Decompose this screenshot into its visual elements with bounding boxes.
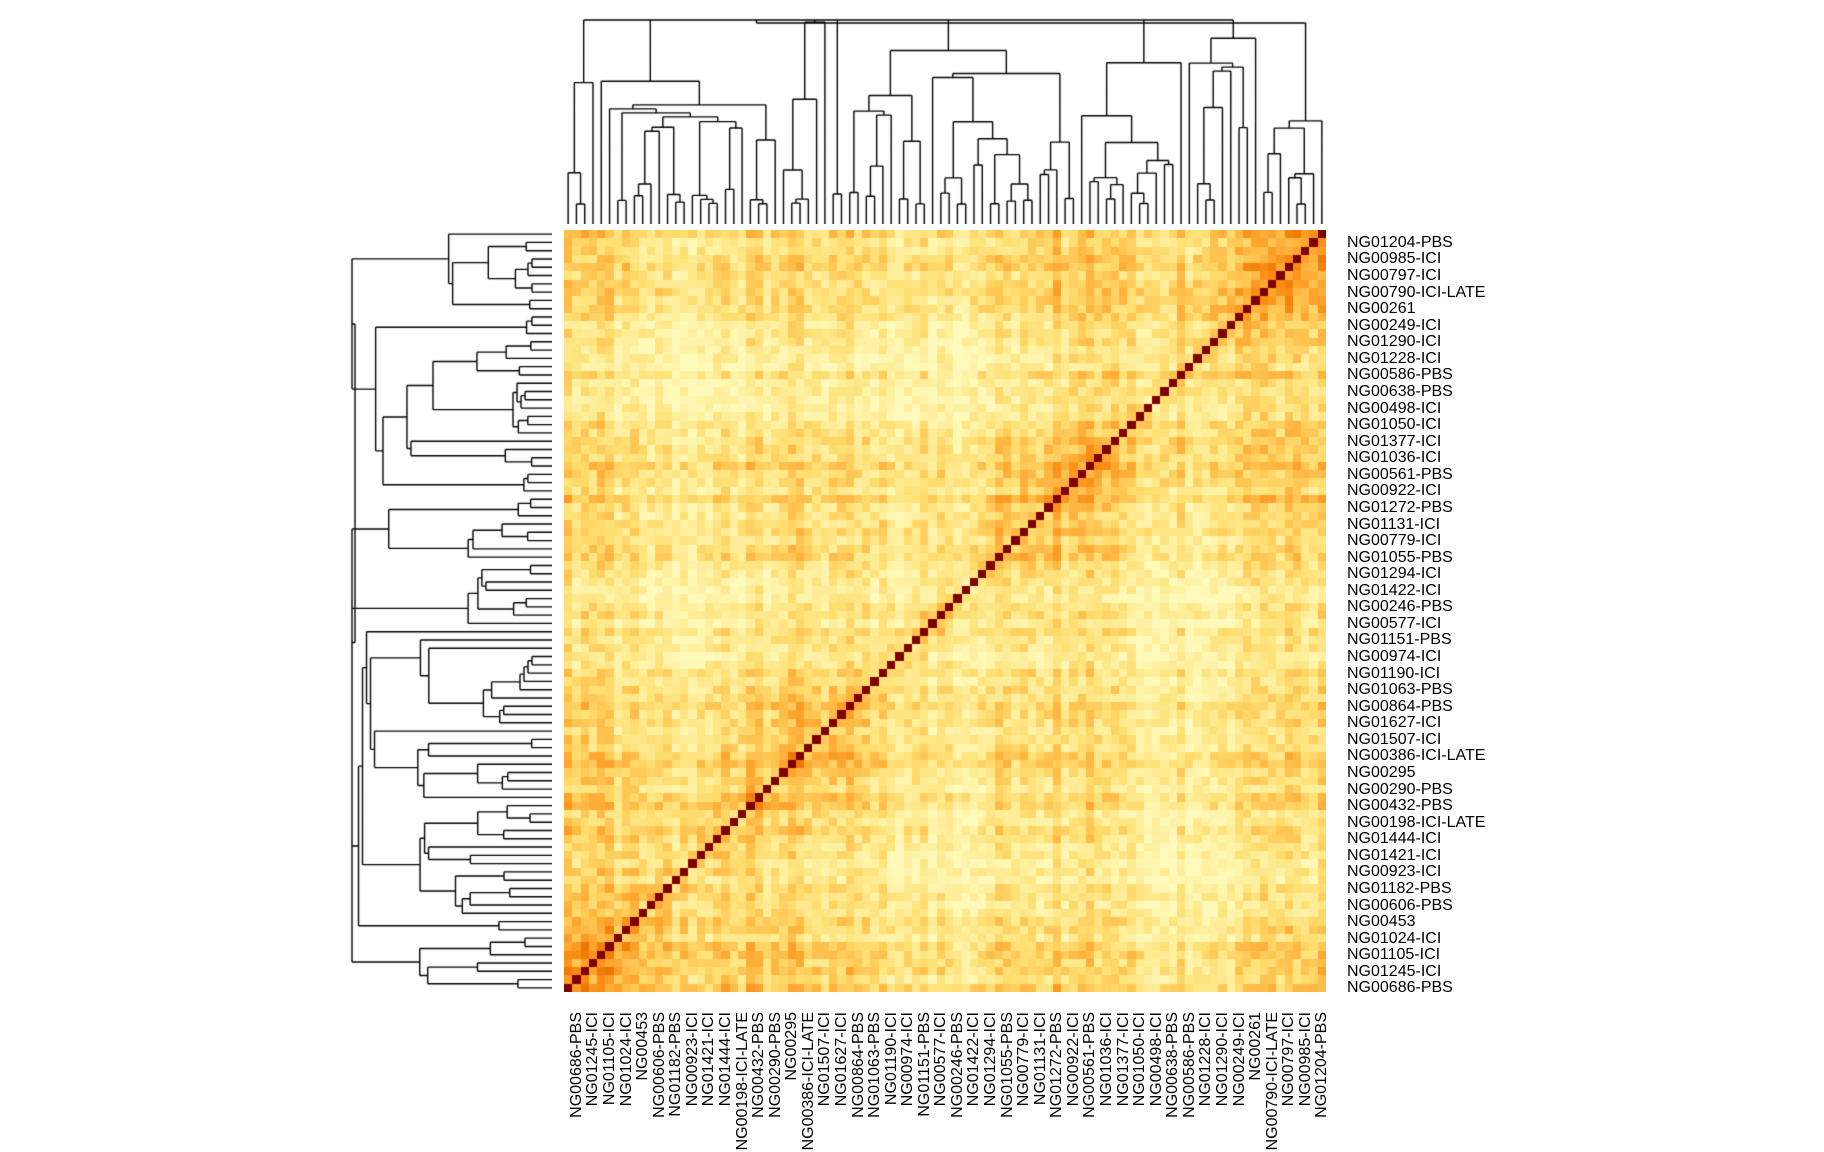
row-label: NG00577-ICI bbox=[1347, 615, 1441, 632]
row-label: NG01290-ICI bbox=[1347, 333, 1441, 350]
column-label: NG01063-PBS bbox=[866, 1012, 883, 1118]
row-label: NG01421-ICI bbox=[1347, 847, 1441, 864]
column-label: NG00246-PBS bbox=[949, 1012, 966, 1118]
row-label: NG00432-PBS bbox=[1347, 797, 1453, 814]
column-label: NG00985-ICI bbox=[1297, 1012, 1314, 1106]
column-label: NG00198-ICI-LATE bbox=[734, 1012, 751, 1150]
column-label: NG00561-PBS bbox=[1081, 1012, 1098, 1118]
column-label: NG01444-ICI bbox=[717, 1012, 734, 1106]
row-label: NG00249-ICI bbox=[1347, 317, 1441, 334]
row-label: NG00386-ICI-LATE bbox=[1347, 747, 1485, 764]
row-label: NG01204-PBS bbox=[1347, 234, 1453, 251]
column-label: NG01421-ICI bbox=[700, 1012, 717, 1106]
row-label: NG01131-ICI bbox=[1347, 516, 1440, 533]
row-label: NG00561-PBS bbox=[1347, 466, 1453, 483]
row-label: NG01444-ICI bbox=[1347, 830, 1441, 847]
row-label: NG00790-ICI-LATE bbox=[1347, 284, 1485, 301]
row-label: NG01245-ICI bbox=[1347, 963, 1441, 980]
column-label: NG01105-ICI bbox=[601, 1012, 618, 1105]
row-label: NG01050-ICI bbox=[1347, 416, 1441, 433]
column-label: NG01182-PBS bbox=[667, 1012, 684, 1117]
column-label: NG01190-ICI bbox=[883, 1012, 900, 1105]
row-label: NG01190-ICI bbox=[1347, 665, 1440, 682]
row-label: NG01063-PBS bbox=[1347, 681, 1453, 698]
row-label: NG01105-ICI bbox=[1347, 946, 1440, 963]
heatmap-matrix bbox=[564, 230, 1326, 992]
row-label: NG00922-ICI bbox=[1347, 482, 1441, 499]
column-label: NG01055-PBS bbox=[999, 1012, 1016, 1118]
column-label: NG00386-ICI-LATE bbox=[800, 1012, 817, 1150]
column-label: NG00779-ICI bbox=[1015, 1012, 1032, 1106]
column-label: NG01036-ICI bbox=[1098, 1012, 1115, 1106]
row-label: NG01228-ICI bbox=[1347, 350, 1441, 367]
column-label: NG00453 bbox=[634, 1012, 651, 1081]
column-label: NG00432-PBS bbox=[750, 1012, 767, 1118]
row-label: NG00864-PBS bbox=[1347, 698, 1453, 715]
row-label: NG00985-ICI bbox=[1347, 250, 1441, 267]
column-label: NG00864-PBS bbox=[850, 1012, 867, 1118]
column-label: NG00577-ICI bbox=[932, 1012, 949, 1106]
row-label: NG00586-PBS bbox=[1347, 366, 1453, 383]
column-label: NG01245-ICI bbox=[584, 1012, 601, 1106]
column-label: NG00295 bbox=[783, 1012, 800, 1081]
row-label: NG00198-ICI-LATE bbox=[1347, 814, 1485, 831]
column-label: NG00638-PBS bbox=[1164, 1012, 1181, 1118]
column-label: NG01151-PBS bbox=[916, 1012, 933, 1117]
column-label: NG00974-ICI bbox=[899, 1012, 916, 1106]
row-label: NG00246-PBS bbox=[1347, 598, 1453, 615]
row-label: NG01422-ICI bbox=[1347, 582, 1441, 599]
row-label: NG01272-PBS bbox=[1347, 499, 1453, 516]
row-label: NG01055-PBS bbox=[1347, 549, 1453, 566]
column-label: NG01290-ICI bbox=[1214, 1012, 1231, 1106]
column-label: NG00606-PBS bbox=[651, 1012, 668, 1118]
row-label: NG00606-PBS bbox=[1347, 897, 1453, 914]
column-dendrogram bbox=[564, 8, 1326, 224]
row-label: NG01294-ICI bbox=[1347, 565, 1441, 582]
row-label: NG00261 bbox=[1347, 300, 1416, 317]
column-label: NG01050-ICI bbox=[1131, 1012, 1148, 1106]
column-label: NG01294-ICI bbox=[982, 1012, 999, 1106]
row-label: NG01182-PBS bbox=[1347, 880, 1452, 897]
row-label: NG01507-ICI bbox=[1347, 731, 1441, 748]
column-label: NG00923-ICI bbox=[684, 1012, 701, 1106]
column-label: NG00922-ICI bbox=[1065, 1012, 1082, 1106]
row-label: NG00974-ICI bbox=[1347, 648, 1441, 665]
row-label: NG00453 bbox=[1347, 913, 1416, 930]
row-label: NG01151-PBS bbox=[1347, 631, 1452, 648]
row-label: NG01377-ICI bbox=[1347, 433, 1441, 450]
row-label: NG00686-PBS bbox=[1347, 979, 1453, 996]
column-label: NG01377-ICI bbox=[1115, 1012, 1132, 1106]
column-label: NG01228-ICI bbox=[1197, 1012, 1214, 1106]
row-label: NG00290-PBS bbox=[1347, 781, 1453, 798]
row-label: NG00797-ICI bbox=[1347, 267, 1441, 284]
column-label: NG00790-ICI-LATE bbox=[1264, 1012, 1281, 1150]
column-label: NG00498-ICI bbox=[1148, 1012, 1165, 1106]
row-label: NG01024-ICI bbox=[1347, 930, 1441, 947]
column-label: NG01422-ICI bbox=[965, 1012, 982, 1106]
column-label: NG01627-ICI bbox=[833, 1012, 850, 1106]
column-label: NG01024-ICI bbox=[618, 1012, 635, 1106]
row-label: NG00498-ICI bbox=[1347, 400, 1441, 417]
row-label: NG00295 bbox=[1347, 764, 1416, 781]
row-label: NG00638-PBS bbox=[1347, 383, 1453, 400]
row-label: NG01627-ICI bbox=[1347, 714, 1441, 731]
row-dendrogram bbox=[345, 230, 552, 992]
column-label: NG00797-ICI bbox=[1280, 1012, 1297, 1106]
column-label: NG00261 bbox=[1247, 1012, 1264, 1081]
column-label: NG01204-PBS bbox=[1313, 1012, 1330, 1118]
row-label: NG01036-ICI bbox=[1347, 449, 1441, 466]
column-label: NG00686-PBS bbox=[568, 1012, 585, 1118]
row-label: NG00779-ICI bbox=[1347, 532, 1441, 549]
clustered-heatmap-figure: NG01204-PBSNG00985-ICING00797-ICING00790… bbox=[0, 0, 1824, 1152]
column-label: NG00249-ICI bbox=[1231, 1012, 1248, 1106]
column-label: NG01131-ICI bbox=[1032, 1012, 1049, 1105]
row-label: NG00923-ICI bbox=[1347, 863, 1441, 880]
column-label: NG01507-ICI bbox=[816, 1012, 833, 1106]
column-label: NG01272-PBS bbox=[1048, 1012, 1065, 1118]
column-label: NG00290-PBS bbox=[767, 1012, 784, 1118]
column-label: NG00586-PBS bbox=[1181, 1012, 1198, 1118]
